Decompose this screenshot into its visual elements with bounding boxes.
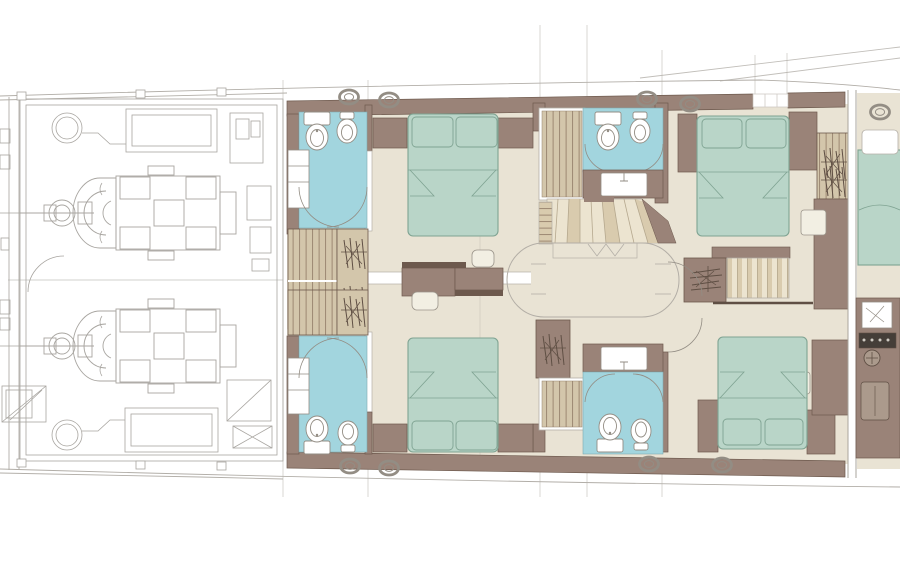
pillow bbox=[456, 421, 497, 450]
bidet-icon bbox=[338, 421, 358, 452]
equipment-cabinets bbox=[227, 113, 272, 448]
starboard-engine bbox=[20, 299, 236, 393]
double-bed bbox=[408, 114, 498, 236]
top-window-gap bbox=[753, 94, 788, 107]
deck-cleats bbox=[17, 88, 226, 470]
stair-to-main-deck bbox=[727, 258, 789, 298]
toilet-icon bbox=[597, 414, 623, 452]
nightstand-right bbox=[498, 424, 533, 452]
stool bbox=[412, 292, 438, 310]
pillow bbox=[746, 119, 786, 148]
double-bed bbox=[718, 337, 807, 449]
seat-cube bbox=[801, 210, 826, 235]
stair-ladder-rail bbox=[539, 202, 552, 244]
fuel-tank-fore bbox=[126, 109, 217, 152]
nightstand-left bbox=[678, 114, 697, 172]
desk-counter-dark2 bbox=[455, 290, 503, 296]
toilet-icon bbox=[595, 112, 621, 150]
pillow bbox=[456, 117, 497, 147]
bidet-icon bbox=[630, 112, 650, 143]
forward-bulkhead bbox=[848, 90, 856, 478]
stair-wall-piece bbox=[584, 196, 614, 202]
nightstand-left bbox=[698, 400, 718, 452]
desk-lower-cabin bbox=[455, 268, 503, 290]
double-bed bbox=[697, 116, 789, 236]
engine-room bbox=[0, 88, 283, 470]
shower bbox=[542, 111, 582, 197]
floor-plan-svg bbox=[0, 0, 900, 564]
bidet-icon bbox=[337, 112, 357, 143]
hanging-locker bbox=[684, 258, 726, 302]
pillow bbox=[412, 421, 453, 450]
pillow bbox=[412, 117, 453, 147]
stair-top-wall bbox=[712, 247, 790, 258]
nightstand-right bbox=[807, 410, 835, 454]
pillow bbox=[862, 130, 898, 154]
nightstand-left bbox=[373, 424, 407, 452]
toilet-icon bbox=[304, 416, 330, 454]
toilet-icon bbox=[304, 112, 330, 150]
bathroom-upper-center bbox=[539, 108, 663, 200]
wardrobe bbox=[288, 290, 368, 335]
bidet-icon bbox=[631, 419, 651, 450]
stool bbox=[472, 250, 494, 267]
nightstand-left bbox=[373, 118, 407, 148]
port-engine bbox=[20, 166, 236, 260]
desk-counter-dark bbox=[402, 262, 466, 268]
engine-room-door-arc bbox=[28, 256, 64, 292]
bow-cabin-partial bbox=[856, 93, 900, 469]
nightstand-right bbox=[498, 118, 533, 148]
shower bbox=[542, 381, 582, 427]
washbasin-cabinet bbox=[288, 358, 309, 414]
stern-platform-fittings bbox=[0, 129, 10, 330]
fuel-tank-aft bbox=[125, 408, 218, 452]
nightstand-right bbox=[789, 112, 817, 170]
double-bed bbox=[408, 338, 498, 452]
cabinet-column bbox=[812, 340, 848, 415]
top-wall-band-right bbox=[788, 92, 845, 108]
pillow bbox=[723, 419, 761, 445]
console-galley-column bbox=[856, 298, 900, 458]
floor-plan-canvas bbox=[0, 0, 900, 564]
washbasin-cabinet bbox=[288, 150, 309, 208]
pipe-aft bbox=[82, 420, 125, 431]
pillow bbox=[765, 419, 803, 445]
pipe-fore bbox=[82, 133, 126, 144]
pillow bbox=[702, 119, 742, 148]
chart-plotter bbox=[862, 302, 892, 328]
round-hatch-fore bbox=[52, 113, 82, 143]
round-hatch-aft bbox=[52, 420, 82, 450]
